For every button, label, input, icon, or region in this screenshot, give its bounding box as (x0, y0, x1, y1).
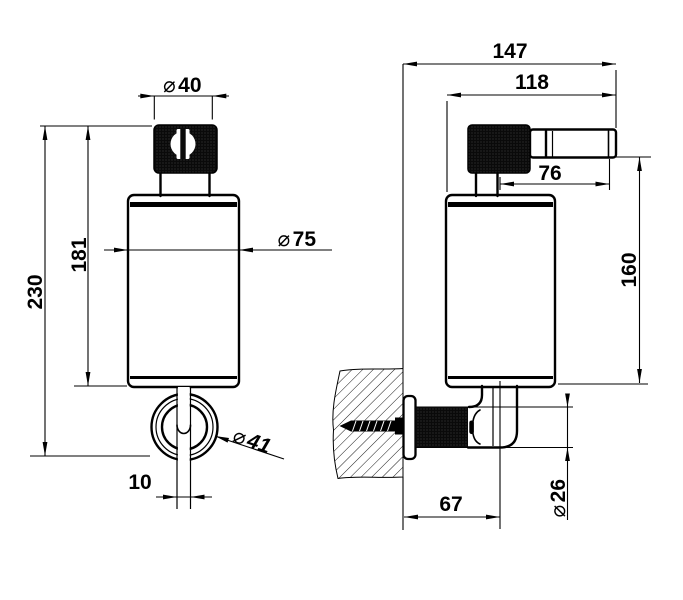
knurled-collar (416, 407, 469, 448)
dim-label-67: 67 (439, 493, 462, 516)
background (0, 0, 683, 600)
wall-flange (404, 396, 416, 459)
dim-label-160: 160 (618, 252, 641, 287)
dim-label-26: ⌀26 (546, 479, 570, 518)
dim-label-75: ⌀75 (277, 227, 316, 251)
dim-label-230: 230 (24, 274, 47, 309)
dim-label-76: 76 (538, 162, 561, 185)
dim-label-147: 147 (492, 40, 527, 63)
technical-drawing-canvas: ⌀40 181 230 ⌀75 ⌀41 (0, 0, 683, 600)
soap-dispenser-dimension-drawing: ⌀40 181 230 ⌀75 ⌀41 (0, 0, 683, 600)
dim-label-181: 181 (68, 237, 91, 272)
dim-label-10: 10 (128, 471, 151, 494)
pump-head-front (154, 125, 217, 173)
pump-head-side (468, 125, 530, 173)
dim-label-40: ⌀40 (162, 73, 201, 97)
dim-label-118: 118 (515, 71, 549, 94)
